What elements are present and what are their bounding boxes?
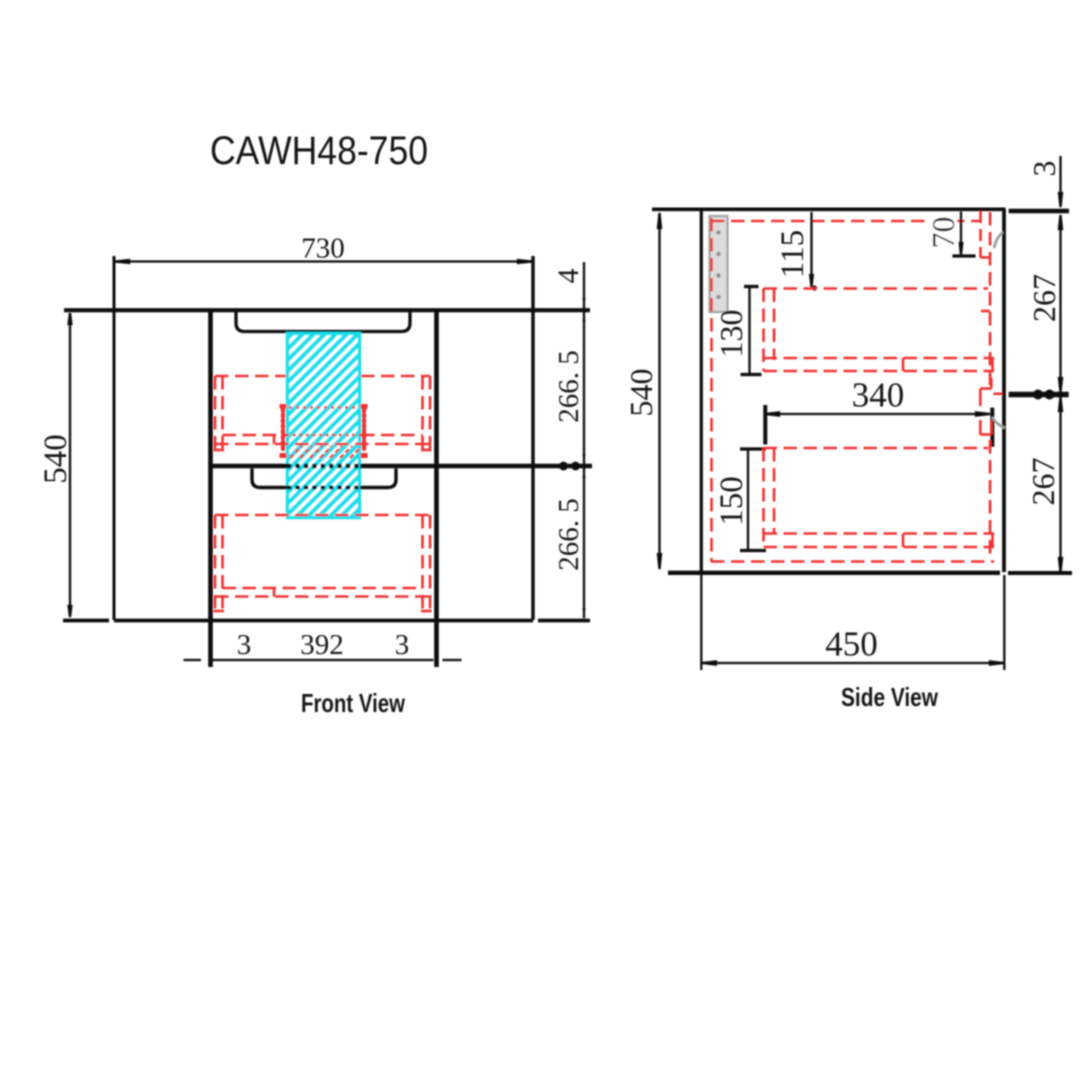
svg-text:CAWH48-750: CAWH48-750: [210, 129, 428, 173]
svg-text:392: 392: [300, 629, 344, 661]
svg-text:130: 130: [713, 310, 749, 358]
svg-text:540: 540: [623, 369, 659, 417]
svg-text:Side View: Side View: [841, 682, 939, 712]
svg-text:266. 5: 266. 5: [553, 498, 585, 571]
svg-text:150: 150: [714, 476, 750, 526]
svg-text:3: 3: [1026, 161, 1062, 177]
svg-text:450: 450: [825, 625, 878, 664]
svg-text:3: 3: [237, 629, 252, 661]
svg-text:266. 5: 266. 5: [553, 350, 585, 423]
svg-text:267: 267: [1025, 458, 1061, 506]
svg-text:3: 3: [395, 629, 410, 661]
svg-text:Front View: Front View: [301, 688, 406, 718]
svg-text:70: 70: [925, 217, 961, 249]
svg-text:730: 730: [301, 233, 345, 265]
svg-text:267: 267: [1026, 274, 1062, 322]
svg-text:340: 340: [852, 376, 905, 415]
svg-text:115: 115: [775, 230, 811, 278]
svg-text:4: 4: [552, 269, 585, 284]
svg-text:540: 540: [38, 434, 74, 484]
